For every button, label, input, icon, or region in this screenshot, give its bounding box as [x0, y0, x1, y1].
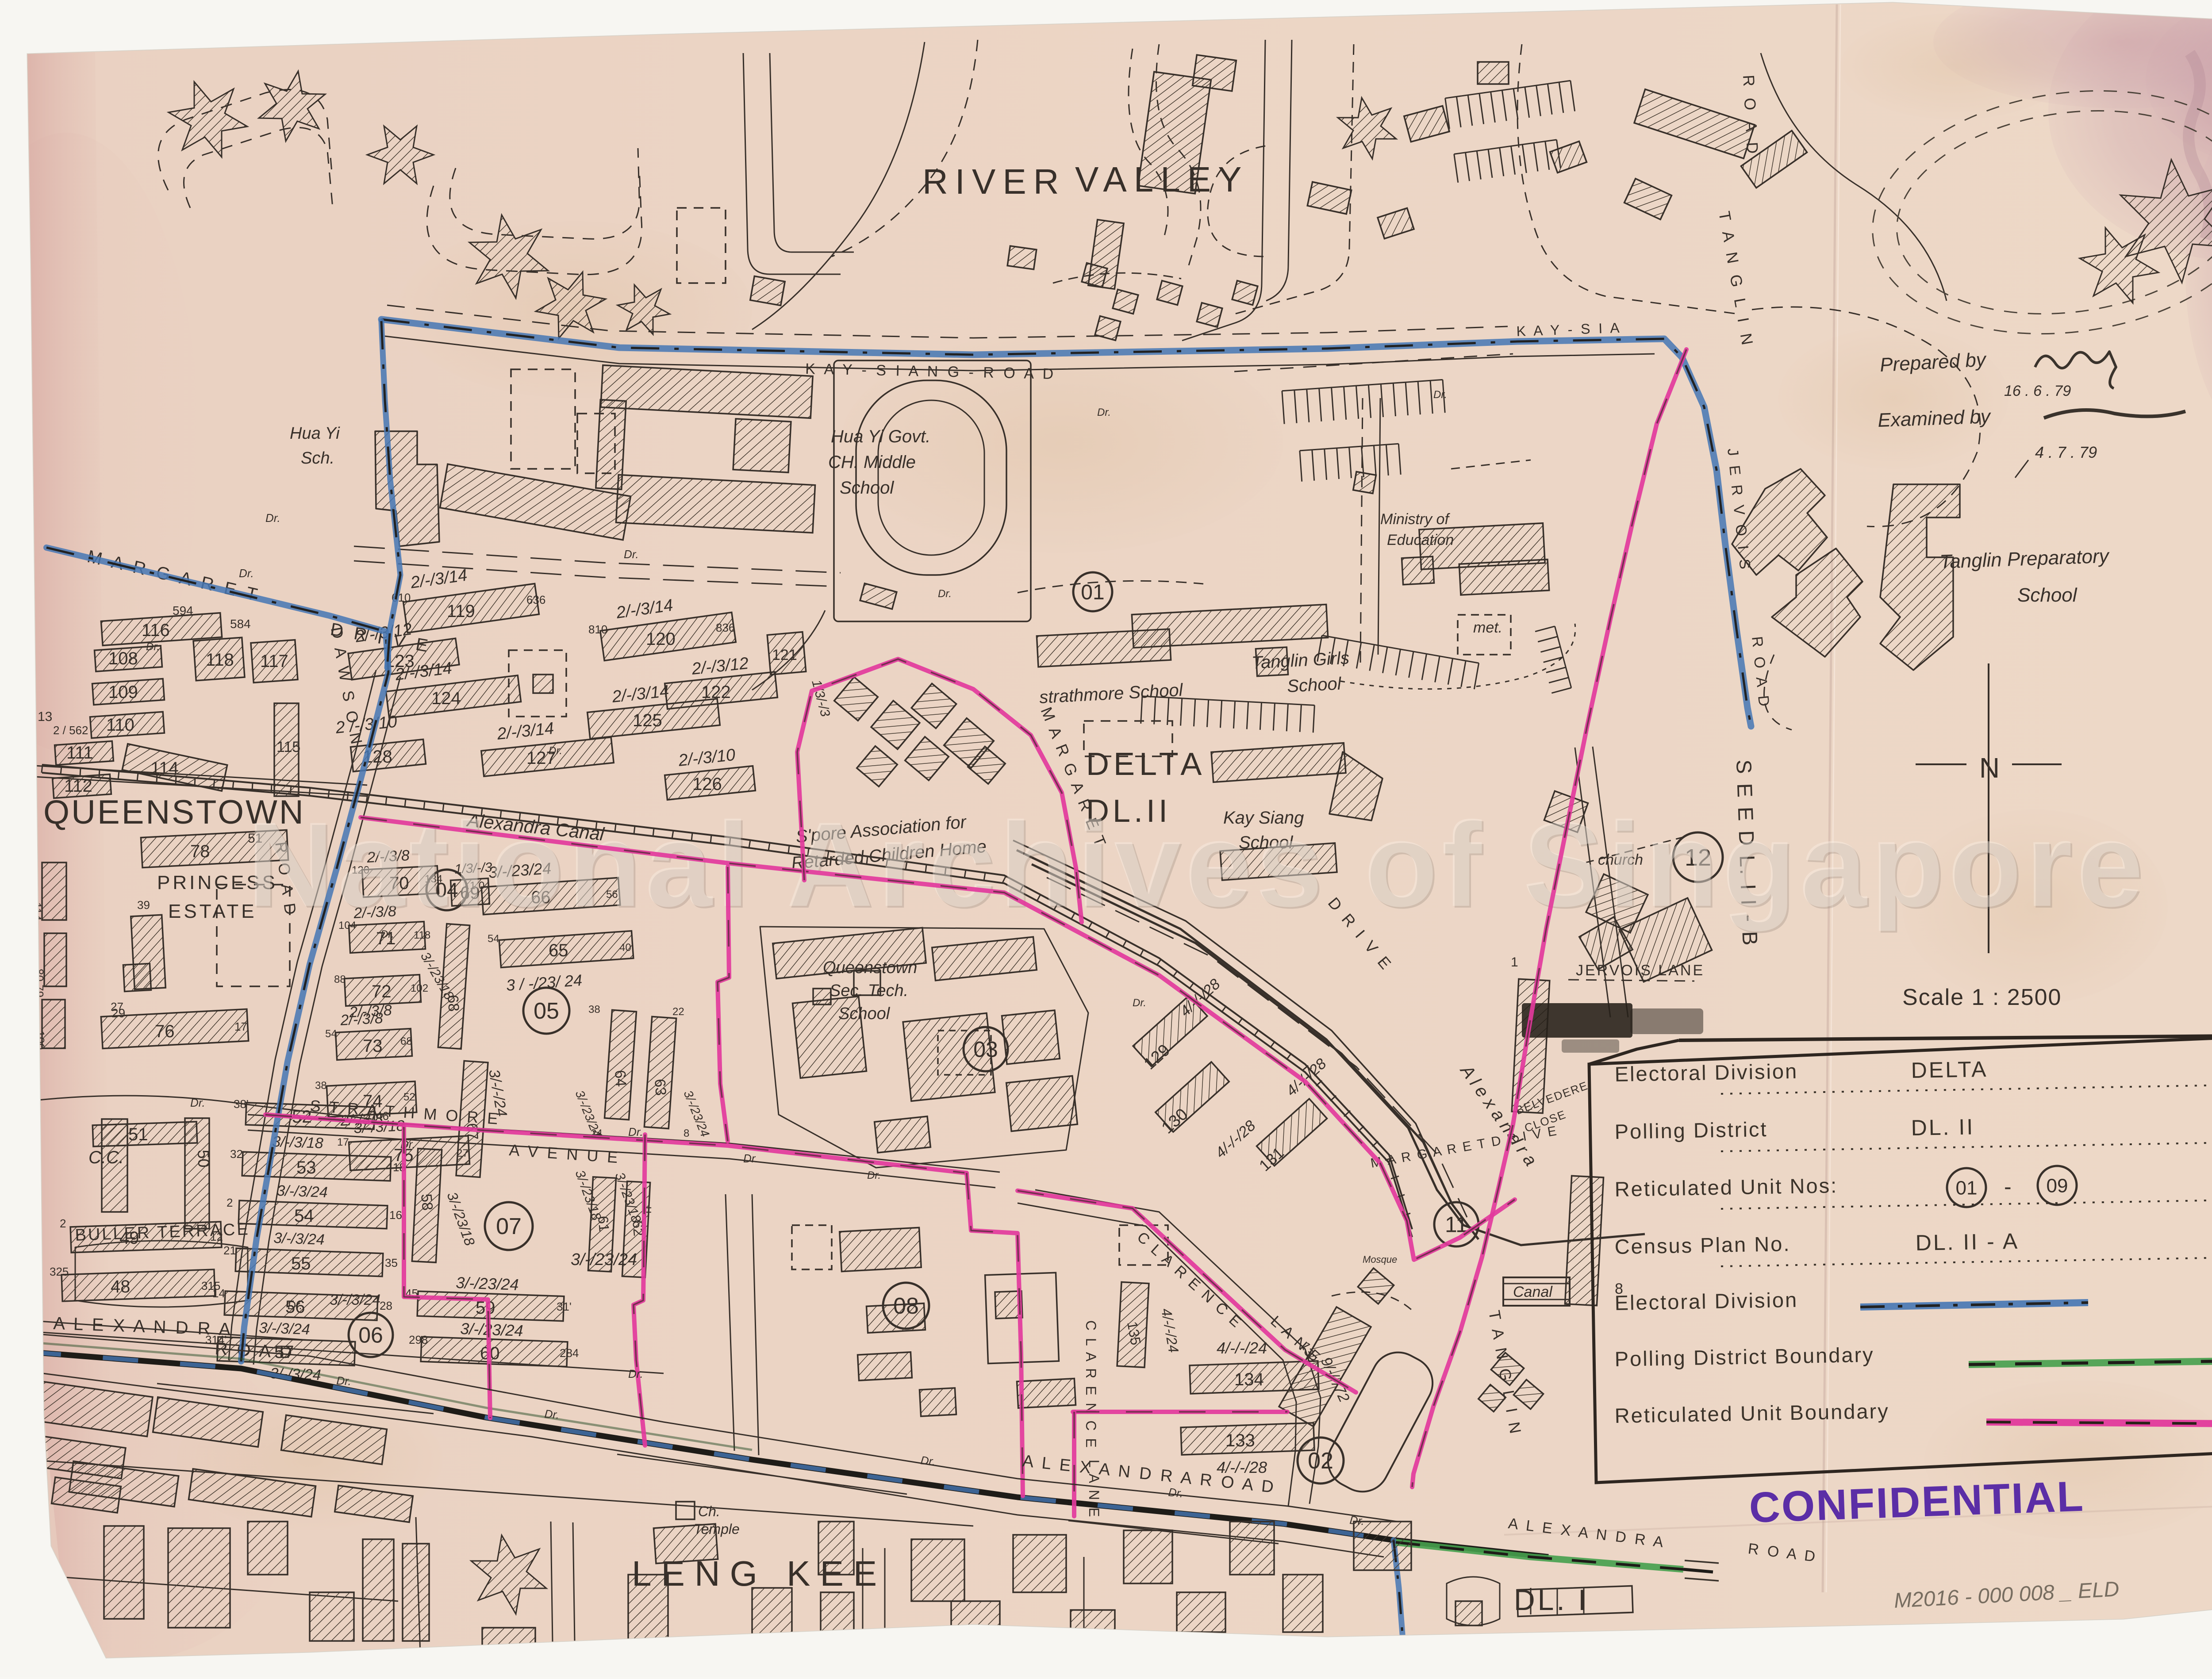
svg-text:National Archives of Singapore: National Archives of Singapore: [247, 797, 2147, 932]
svg-text:Dr.: Dr.: [920, 1453, 936, 1468]
svg-text:38: 38: [315, 1080, 327, 1092]
svg-text:Sch.: Sch.: [301, 449, 334, 468]
svg-text:Ch.: Ch.: [698, 1503, 720, 1519]
svg-text:Electoral Division: Electoral Division: [1614, 1288, 1798, 1315]
svg-text:108: 108: [108, 649, 138, 668]
svg-text:Dr.: Dr.: [146, 641, 160, 653]
svg-text:Dr.: Dr.: [624, 548, 639, 561]
svg-text:54: 54: [325, 1028, 337, 1040]
svg-text:58: 58: [418, 1193, 436, 1211]
svg-text:2: 2: [60, 1217, 66, 1230]
svg-text:ESTATE: ESTATE: [168, 901, 257, 922]
svg-text:3/-/3/24: 3/-/3/24: [273, 1230, 325, 1248]
svg-text:810: 810: [588, 623, 607, 636]
svg-text:38: 38: [588, 1004, 600, 1016]
svg-text:118: 118: [206, 650, 234, 670]
svg-text:Mosque: Mosque: [1363, 1254, 1397, 1265]
svg-text:Dr.: Dr.: [336, 1374, 352, 1388]
svg-text:63: 63: [651, 1078, 669, 1096]
svg-text:120: 120: [646, 629, 676, 649]
svg-text:52: 52: [403, 1091, 415, 1103]
svg-text:315: 315: [201, 1279, 220, 1292]
svg-text:Dr.: Dr.: [1133, 997, 1146, 1009]
svg-text:3/-/3/24: 3/-/3/24: [276, 1182, 328, 1201]
svg-text:119: 119: [447, 602, 475, 621]
svg-text:51: 51: [128, 1125, 148, 1144]
svg-text:39: 39: [137, 898, 150, 912]
svg-text:72: 72: [372, 982, 392, 1001]
svg-text:Hua Yi: Hua Yi: [290, 424, 340, 443]
svg-text:298: 298: [409, 1333, 428, 1346]
svg-text:School: School: [840, 478, 894, 498]
svg-text:32: 32: [230, 1147, 243, 1161]
svg-text:Temple: Temple: [694, 1521, 740, 1537]
svg-text:Dr.: Dr.: [1433, 389, 1447, 401]
svg-text:31': 31': [557, 1300, 572, 1313]
svg-text:3/-/3/24: 3/-/3/24: [330, 1292, 380, 1308]
svg-text:13: 13: [38, 709, 52, 724]
svg-text:121: 121: [772, 647, 797, 663]
svg-text:Dr.: Dr.: [288, 1299, 303, 1312]
svg-text:Dr.: Dr.: [743, 1152, 758, 1165]
svg-text:School: School: [1286, 674, 1342, 696]
svg-text:16 . 6 . 79: 16 . 6 . 79: [2004, 383, 2071, 399]
svg-text:48: 48: [111, 1277, 131, 1296]
svg-text:109: 109: [108, 682, 138, 702]
svg-text:2/-/3/8: 2/-/3/8: [339, 1010, 383, 1029]
svg-text:50: 50: [194, 1150, 213, 1168]
svg-text:836: 836: [716, 621, 735, 634]
svg-text:64: 64: [611, 1069, 630, 1087]
svg-text:Dr.: Dr.: [544, 1407, 560, 1422]
svg-text:School: School: [2017, 584, 2078, 606]
svg-text:38': 38': [234, 1097, 249, 1111]
svg-text:40: 40: [619, 942, 631, 954]
svg-text:54: 54: [488, 933, 499, 945]
svg-text:134: 134: [1234, 1370, 1264, 1389]
svg-text:VALLEY: VALLEY: [1075, 160, 1248, 199]
svg-text:Reticulated Unit Nos:: Reticulated Unit Nos:: [1614, 1173, 1838, 1201]
svg-text:DL. II: DL. II: [1911, 1115, 1974, 1140]
svg-text:22: 22: [672, 1006, 684, 1018]
svg-text:76: 76: [155, 1022, 175, 1041]
svg-text:met.: met.: [1473, 619, 1502, 636]
svg-text:Dr.: Dr.: [239, 567, 254, 580]
svg-text:8: 8: [684, 1127, 689, 1139]
svg-text:73: 73: [363, 1036, 383, 1056]
svg-text:594: 594: [173, 604, 193, 617]
svg-text:Census Plan No.: Census Plan No.: [1614, 1232, 1791, 1258]
svg-text:4 . 7 . 79: 4 . 7 . 79: [2035, 443, 2097, 461]
svg-text:133: 133: [1225, 1431, 1255, 1450]
svg-text:3/-/23/24: 3/-/23/24: [456, 1273, 519, 1294]
svg-text:584: 584: [230, 617, 251, 631]
svg-text:Dr.: Dr.: [628, 1125, 643, 1138]
svg-text:CH. Middle: CH. Middle: [828, 452, 916, 472]
svg-text:284: 284: [560, 1346, 579, 1360]
svg-text:Dr.: Dr.: [938, 588, 952, 600]
svg-text:116: 116: [142, 621, 170, 640]
svg-text:Ministry of: Ministry of: [1380, 511, 1450, 528]
svg-text:Dr.: Dr.: [1097, 406, 1111, 418]
svg-text:Dr.: Dr.: [549, 745, 562, 757]
svg-text:88: 88: [334, 974, 346, 985]
svg-text:C L A R E N C E: C L A R E N C E: [1083, 1320, 1099, 1449]
svg-text:01: 01: [1081, 581, 1104, 604]
svg-text:35: 35: [385, 1256, 398, 1269]
svg-text:3/-/3/24: 3/-/3/24: [259, 1319, 311, 1338]
svg-text:102: 102: [411, 982, 428, 994]
svg-text:3/-/23/24: 3/-/23/24: [571, 1250, 637, 1269]
svg-text:17: 17: [337, 1136, 349, 1148]
svg-text:Polling District: Polling District: [1614, 1117, 1768, 1143]
svg-text:RIVER: RIVER: [922, 162, 1066, 201]
svg-text:06: 06: [358, 1323, 383, 1348]
svg-text:Examined by: Examined by: [1878, 406, 1992, 431]
svg-text:Polling District Boundary: Polling District Boundary: [1614, 1343, 1874, 1371]
svg-text:2: 2: [227, 1196, 233, 1209]
svg-text:28: 28: [380, 1299, 392, 1312]
svg-text:-: -: [2004, 1174, 2012, 1199]
svg-text:School: School: [838, 1004, 891, 1023]
svg-text:1: 1: [1511, 955, 1518, 970]
svg-text:DELTA: DELTA: [1086, 747, 1206, 782]
svg-text:53: 53: [296, 1158, 316, 1177]
svg-text:Sec. Tech.: Sec. Tech.: [829, 981, 908, 1000]
svg-text:01: 01: [1956, 1177, 1978, 1199]
svg-text:17: 17: [234, 1020, 247, 1033]
svg-text:126: 126: [692, 774, 722, 794]
svg-text:DL. II - A: DL. II - A: [1915, 1229, 2019, 1255]
svg-text:Reticulated Unit Boundary: Reticulated Unit Boundary: [1614, 1399, 1889, 1427]
svg-text:LENG KEE: LENG KEE: [632, 1554, 887, 1593]
svg-text:68: 68: [400, 1035, 412, 1047]
svg-text:03: 03: [973, 1037, 998, 1062]
svg-text:55: 55: [291, 1254, 311, 1273]
svg-text:DELTA: DELTA: [1911, 1057, 1988, 1083]
svg-text:07: 07: [496, 1214, 522, 1239]
svg-text:02: 02: [1308, 1448, 1333, 1474]
svg-text:27: 27: [111, 1000, 123, 1013]
svg-text:Education: Education: [1387, 532, 1454, 548]
svg-text:125: 125: [633, 711, 662, 730]
svg-text:3/-/3/18: 3/-/3/18: [272, 1133, 324, 1152]
svg-text:Dr.: Dr.: [265, 511, 280, 525]
svg-text:21: 21: [223, 1244, 236, 1257]
svg-text:325: 325: [50, 1265, 69, 1278]
svg-text:65: 65: [549, 941, 568, 960]
svg-text:16: 16: [389, 1208, 402, 1222]
svg-text:Dr.: Dr.: [628, 1367, 643, 1380]
svg-text:110: 110: [106, 715, 134, 735]
svg-text:3/-/23/24: 3/-/23/24: [460, 1319, 523, 1340]
svg-text:54: 54: [294, 1206, 314, 1226]
svg-text:117: 117: [260, 652, 288, 671]
svg-text:Canal: Canal: [1513, 1284, 1553, 1300]
svg-text:R O A D: R O A D: [215, 1339, 295, 1362]
svg-text:N: N: [1979, 752, 2000, 784]
svg-text:05: 05: [534, 998, 559, 1024]
svg-text:4/-/-/24: 4/-/-/24: [1217, 1339, 1267, 1357]
svg-text:Scale 1 : 2500: Scale 1 : 2500: [1902, 985, 2062, 1010]
svg-text:115: 115: [276, 739, 300, 755]
svg-text:2 / 562: 2 / 562: [53, 724, 88, 737]
svg-text:Queenstown: Queenstown: [823, 958, 917, 977]
svg-text:124: 124: [431, 689, 461, 708]
svg-text:Dr.: Dr.: [190, 1096, 205, 1109]
svg-text:78: 78: [190, 842, 210, 861]
svg-text:Dr.: Dr.: [1167, 1485, 1184, 1500]
svg-text:09: 09: [2047, 1175, 2068, 1196]
svg-text:636: 636: [526, 593, 545, 606]
svg-text:111: 111: [66, 743, 93, 763]
svg-text:Hua Yi Govt.: Hua Yi Govt.: [831, 427, 930, 446]
svg-text:Electoral Division: Electoral Division: [1614, 1059, 1798, 1086]
